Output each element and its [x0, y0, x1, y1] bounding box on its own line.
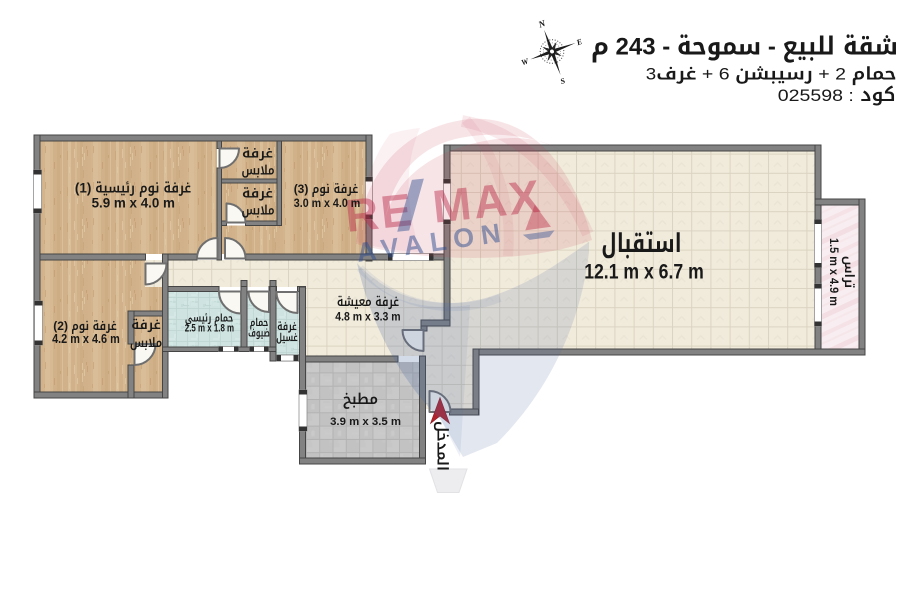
svg-text:1.5 m x 4.9 m: 1.5 m x 4.9 m — [827, 238, 839, 306]
svg-text:3.9 m x 3.5 m: 3.9 m x 3.5 m — [330, 416, 401, 428]
svg-text:5.9 m x 4.0 m: 5.9 m x 4.0 m — [92, 196, 175, 211]
svg-text:4.8 m x 3.3 m: 4.8 m x 3.3 m — [335, 311, 400, 324]
svg-text:-: - — [768, 34, 776, 61]
svg-text:3.0 m x 4.0 m: 3.0 m x 4.0 m — [294, 197, 360, 210]
svg-text:243 -: 243 - — [616, 34, 671, 61]
svg-text:+ 6: + 6 — [702, 64, 730, 83]
svg-text:12.1 m x 6.7 m: 12.1 m x 6.7 m — [584, 260, 704, 284]
svg-text:2.5 m x 1.8 m: 2.5 m x 1.8 m — [185, 322, 234, 335]
svg-text:+ 2: + 2 — [818, 64, 846, 83]
svg-text:4.2 m x 4.6 m: 4.2 m x 4.6 m — [52, 331, 120, 346]
svg-text:3: 3 — [646, 64, 656, 83]
svg-text:(1): (1) — [75, 181, 92, 196]
svg-text:(3): (3) — [294, 182, 309, 196]
svg-text:025598 :: 025598 : — [778, 85, 854, 104]
